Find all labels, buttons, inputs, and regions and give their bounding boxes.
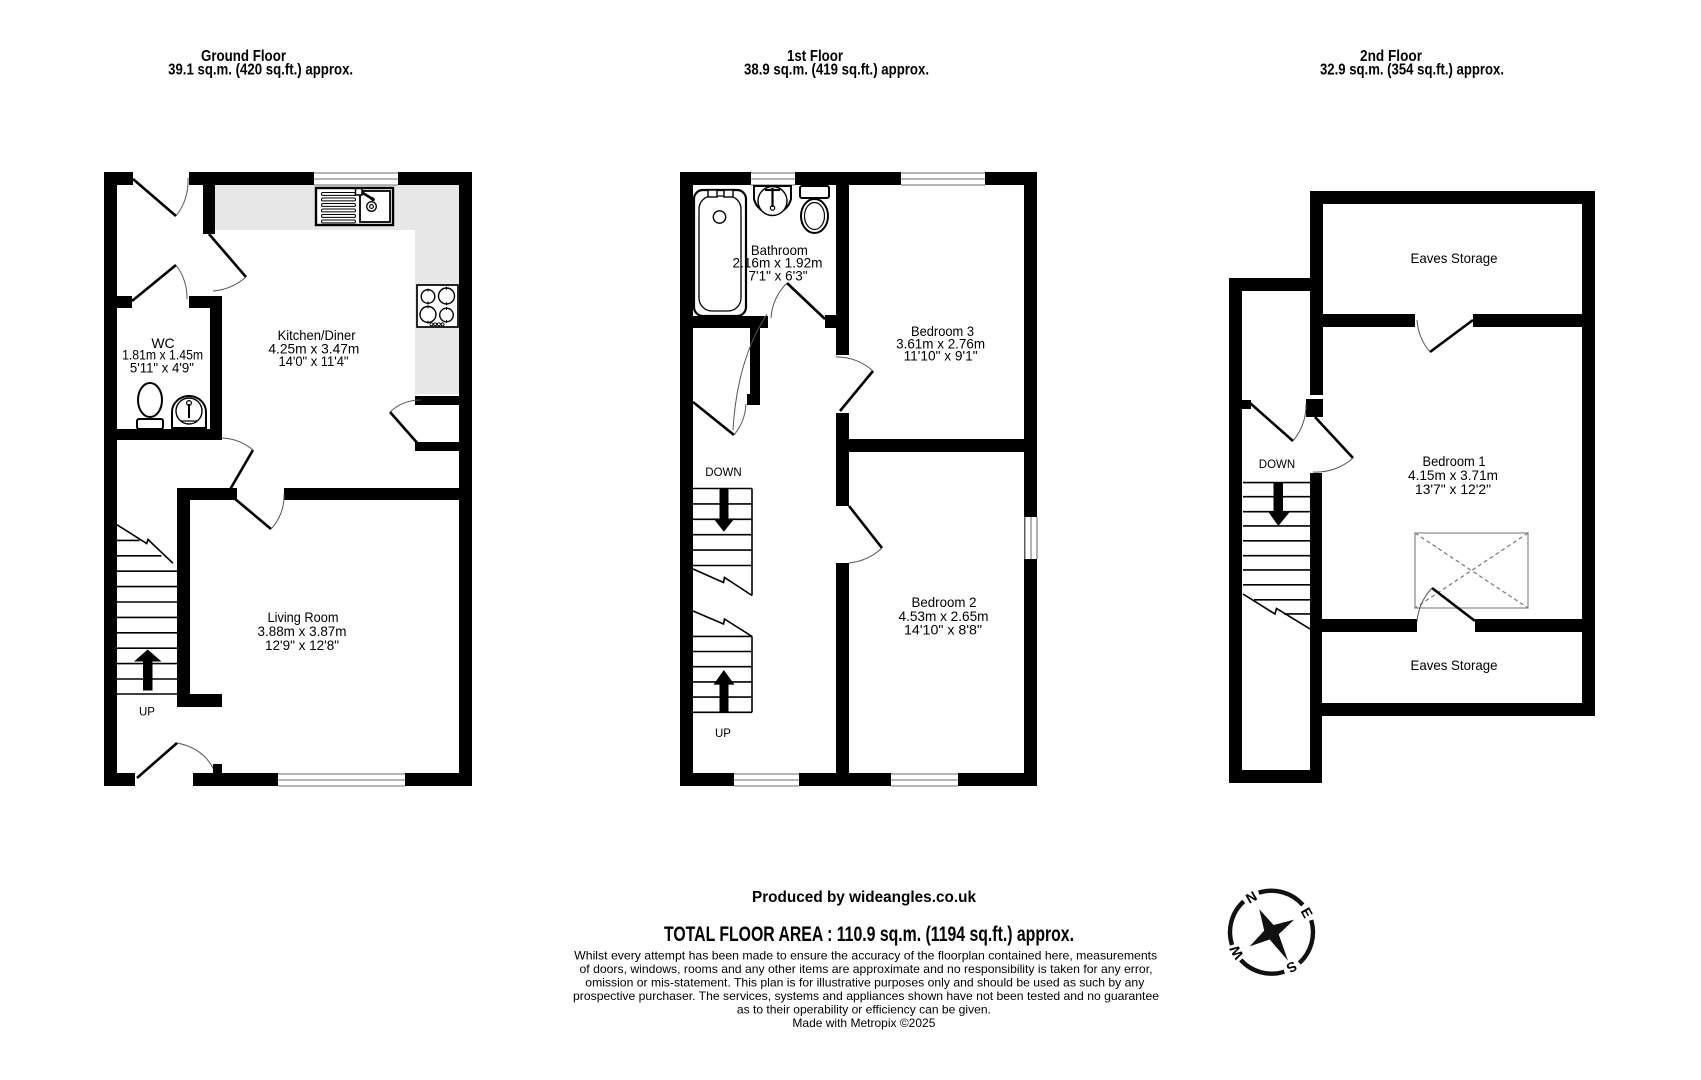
svg-text:32.9 sq.m. (354 sq.ft.) approx: 32.9 sq.m. (354 sq.ft.) approx. bbox=[1320, 62, 1504, 79]
svg-text:11'10" x 9'1": 11'10" x 9'1" bbox=[904, 348, 978, 364]
svg-text:prospective purchaser. The ser: prospective purchaser. The services, sys… bbox=[573, 989, 1159, 1003]
svg-text:5'11" x 4'9": 5'11" x 4'9" bbox=[130, 360, 194, 376]
svg-text:38.9 sq.m. (419 sq.ft.) approx: 38.9 sq.m. (419 sq.ft.) approx. bbox=[744, 62, 929, 79]
svg-text:Produced by wideangles.co.uk: Produced by wideangles.co.uk bbox=[752, 889, 976, 906]
svg-text:of doors, windows, rooms and a: of doors, windows, rooms and any other i… bbox=[580, 962, 1153, 976]
svg-text:39.1 sq.m. (420 sq.ft.) approx: 39.1 sq.m. (420 sq.ft.) approx. bbox=[168, 62, 353, 79]
svg-text:as to their operability or eff: as to their operability or efficiency ca… bbox=[737, 1002, 991, 1016]
svg-text:W: W bbox=[1226, 942, 1247, 962]
svg-text:Made with Metropix ©2025: Made with Metropix ©2025 bbox=[792, 1016, 935, 1030]
svg-text:14'0" x 11'4": 14'0" x 11'4" bbox=[279, 353, 349, 369]
svg-text:14'10" x 8'8": 14'10" x 8'8" bbox=[904, 622, 982, 638]
svg-text:Eaves Storage: Eaves Storage bbox=[1411, 657, 1498, 673]
svg-text:TOTAL FLOOR AREA : 110.9 sq.m.: TOTAL FLOOR AREA : 110.9 sq.m. (1194 sq.… bbox=[664, 923, 1074, 946]
svg-text:S: S bbox=[1284, 958, 1300, 977]
svg-text:12'9" x 12'8": 12'9" x 12'8" bbox=[265, 637, 339, 653]
svg-text:7'1" x 6'3": 7'1" x 6'3" bbox=[749, 268, 808, 284]
svg-text:DOWN: DOWN bbox=[1259, 459, 1295, 471]
svg-text:Whilst every attempt has been: Whilst every attempt has been made to en… bbox=[574, 949, 1157, 963]
svg-text:DOWN: DOWN bbox=[705, 467, 741, 479]
svg-text:UP: UP bbox=[715, 728, 731, 740]
svg-text:UP: UP bbox=[139, 707, 155, 719]
svg-text:13'7" x 12'2": 13'7" x 12'2" bbox=[1415, 481, 1491, 497]
svg-text:omission or mis-statement. Thi: omission or mis-statement. This plan is … bbox=[585, 976, 1144, 990]
svg-text:Eaves Storage: Eaves Storage bbox=[1411, 250, 1498, 266]
svg-text:N: N bbox=[1243, 888, 1260, 907]
svg-text:E: E bbox=[1298, 905, 1317, 921]
